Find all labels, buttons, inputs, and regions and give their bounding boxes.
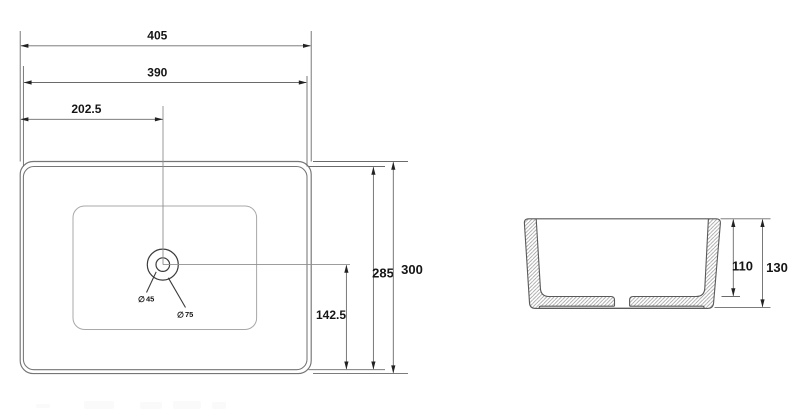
- svg-text:45: 45: [146, 295, 154, 304]
- svg-text:∅: ∅: [138, 295, 145, 304]
- svg-text:285: 285: [372, 265, 394, 280]
- svg-text:142.5: 142.5: [316, 308, 346, 322]
- svg-text:110: 110: [732, 259, 753, 274]
- svg-text:300: 300: [401, 262, 423, 277]
- svg-text:130: 130: [766, 260, 788, 275]
- svg-text:75: 75: [185, 310, 193, 319]
- svg-text:202.5: 202.5: [71, 102, 101, 116]
- svg-text:405: 405: [147, 29, 167, 43]
- svg-text:390: 390: [147, 65, 167, 79]
- svg-text:∅: ∅: [177, 311, 184, 320]
